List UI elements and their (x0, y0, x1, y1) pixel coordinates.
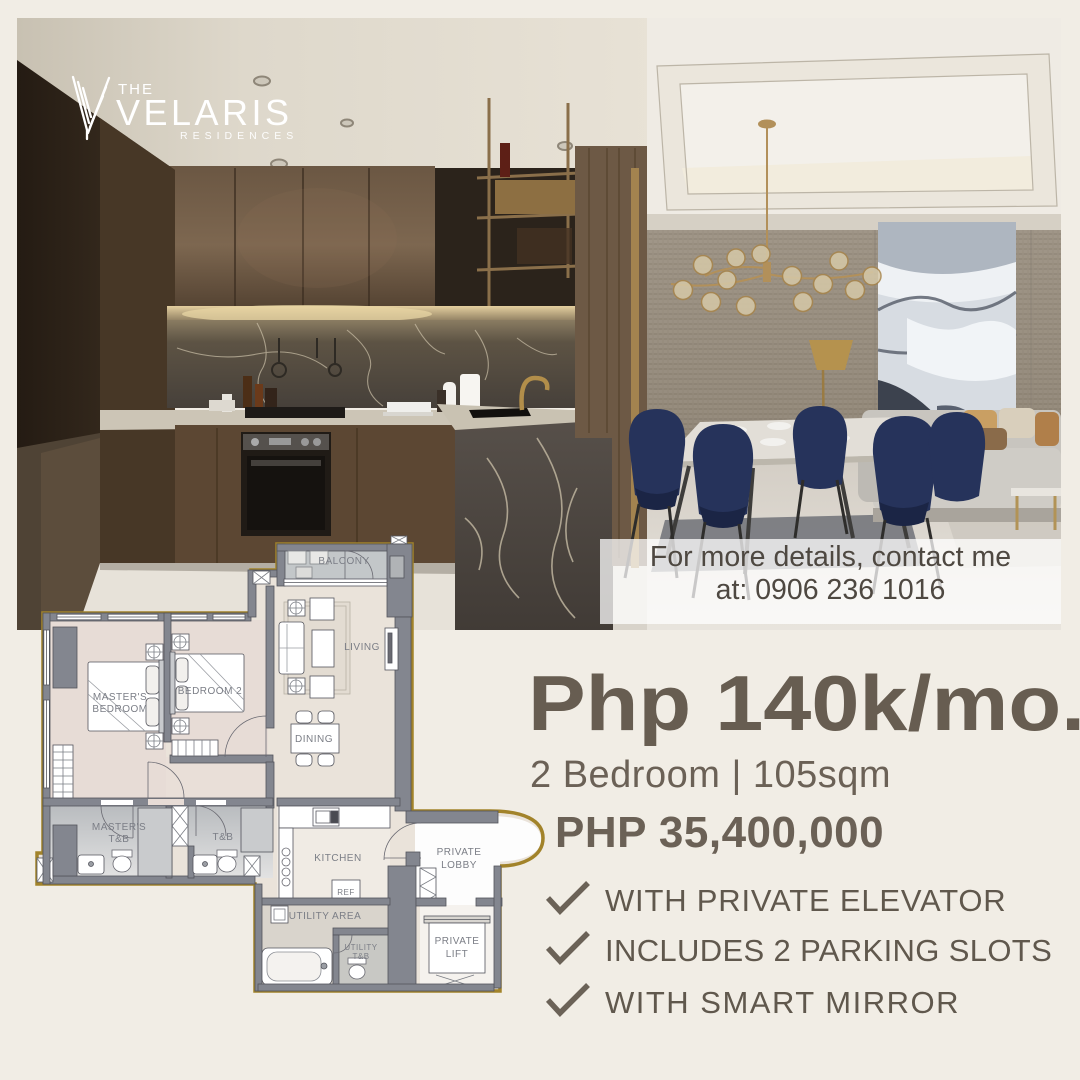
svg-text:MASTER'S: MASTER'S (93, 692, 147, 703)
svg-text:LIFT: LIFT (446, 949, 469, 960)
svg-text:REF: REF (337, 888, 355, 897)
svg-text:T&B: T&B (109, 834, 130, 845)
svg-text:UTILITY AREA: UTILITY AREA (289, 911, 362, 922)
svg-text:T&B: T&B (213, 832, 234, 843)
svg-text:PRIVATE: PRIVATE (435, 936, 480, 947)
svg-text:KITCHEN: KITCHEN (314, 853, 361, 864)
svg-text:BEDROOM 2: BEDROOM 2 (178, 686, 243, 697)
svg-text:BEDROOM: BEDROOM (92, 704, 147, 715)
svg-text:T&B: T&B (352, 952, 369, 961)
svg-text:VELARIS: VELARIS (116, 92, 293, 133)
svg-text:BALCONY: BALCONY (318, 556, 369, 567)
svg-text:LIVING: LIVING (344, 642, 380, 653)
svg-text:UTILITY: UTILITY (344, 943, 377, 952)
svg-text:LOBBY: LOBBY (441, 860, 477, 871)
svg-text:DINING: DINING (295, 734, 333, 745)
svg-text:PRIVATE: PRIVATE (437, 847, 482, 858)
svg-text:MASTER'S: MASTER'S (92, 822, 146, 833)
svg-text:RESIDENCES: RESIDENCES (180, 130, 298, 142)
